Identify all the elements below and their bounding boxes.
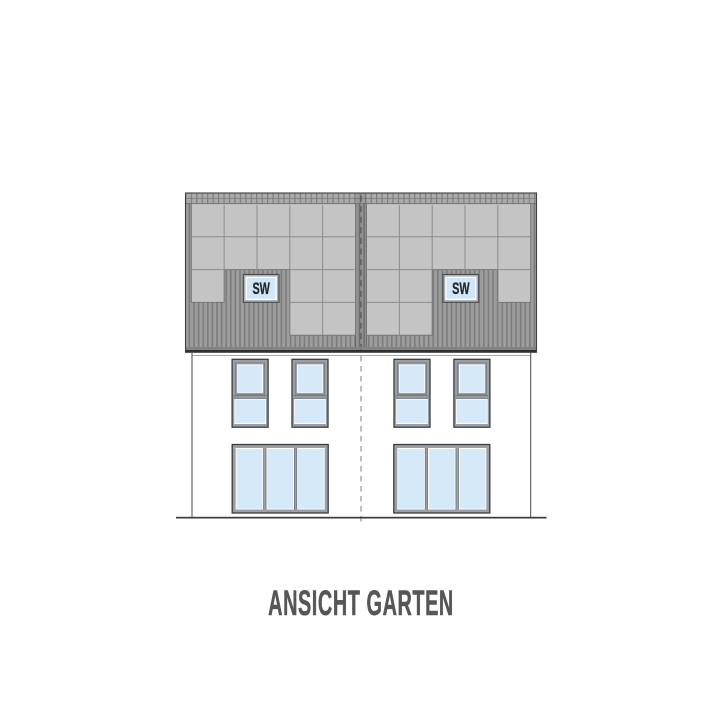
svg-text:SW: SW <box>252 279 270 298</box>
svg-text:ANSICHT GARTEN: ANSICHT GARTEN <box>268 584 454 623</box>
svg-text:SW: SW <box>452 279 470 298</box>
